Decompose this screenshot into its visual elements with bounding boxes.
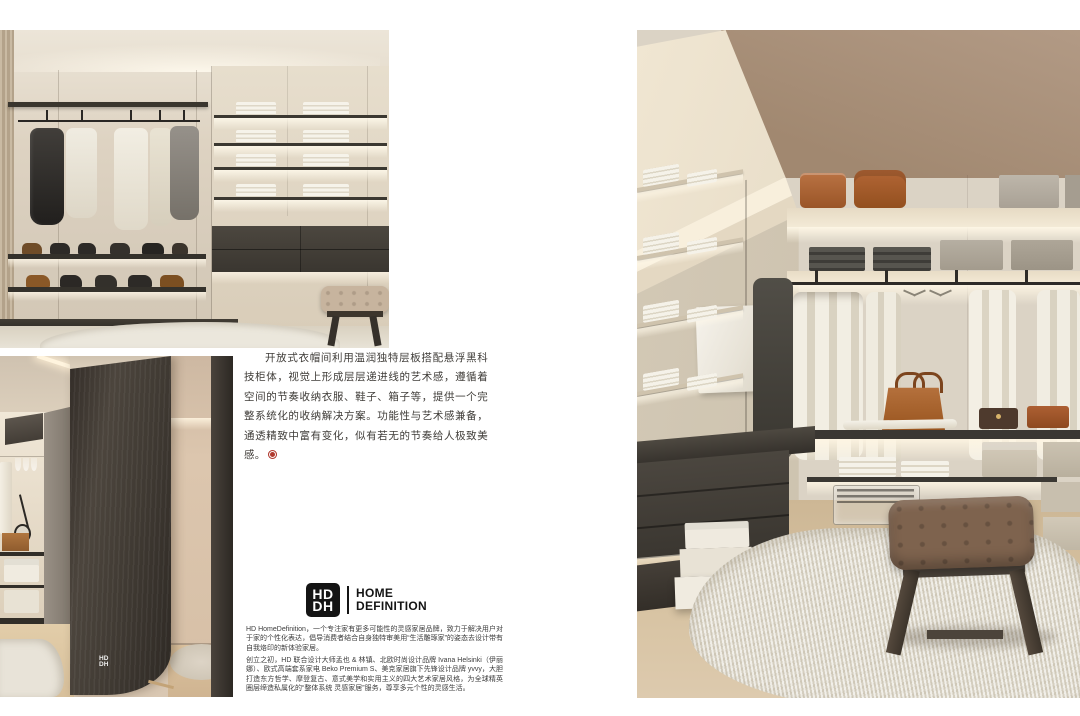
- grey-coat: [170, 126, 199, 220]
- brand-logo: HD DH HOME DEFINITION: [306, 583, 427, 617]
- drawer-seam: [300, 226, 301, 272]
- white-shirt: [66, 128, 97, 218]
- hd-watermark: HD DH: [99, 656, 108, 668]
- towel-stack: [303, 154, 349, 167]
- hanger-hook: [46, 110, 48, 122]
- monogram-row-bottom: DH: [312, 600, 333, 613]
- shoe-pair: [172, 243, 188, 254]
- counter-shelf: [787, 430, 1080, 439]
- rod-support: [885, 270, 888, 284]
- drawer-glow: [212, 272, 389, 284]
- shoe-pair: [26, 275, 50, 287]
- niche-shelf: [0, 552, 47, 556]
- rail-fascia: [787, 271, 1080, 282]
- hanger-hook: [81, 110, 83, 122]
- wordmark-line-2: DEFINITION: [356, 600, 427, 614]
- shoe-pair: [142, 243, 164, 254]
- beige-box: [982, 442, 1037, 477]
- shoe-pair: [110, 243, 130, 254]
- rod-support: [955, 270, 958, 284]
- towel-stack: [236, 102, 276, 115]
- towel-stack: [236, 154, 276, 167]
- shelf-glow: [8, 259, 206, 268]
- towel-stack: [839, 457, 896, 477]
- shag-rug: [0, 639, 64, 697]
- towel-shelf-glow: [214, 200, 387, 212]
- towel-stack: [303, 184, 349, 197]
- magazine-page: HD DH 开放式衣帽间利用温润独特层板搭配悬浮黑科技柜体，视觉上形成层层递进线…: [0, 0, 1080, 716]
- towel-stack: [236, 184, 276, 197]
- beige-box: [1043, 442, 1080, 477]
- white-box: [4, 559, 39, 582]
- hd-watermark-bottom: DH: [99, 662, 108, 668]
- hanging-towel: [0, 462, 12, 534]
- jeans-stack: [809, 247, 865, 271]
- bench-stretcher: [927, 630, 1003, 639]
- photo-partition-room: HD DH: [0, 356, 233, 697]
- rod-support: [1025, 270, 1028, 284]
- grey-box: [940, 240, 1003, 270]
- shoe-pair: [22, 243, 42, 254]
- wordmark-line-1: HOME: [356, 587, 427, 601]
- wood-partition: [70, 356, 171, 695]
- beige-box: [1041, 482, 1080, 512]
- glass-rod: [0, 456, 46, 457]
- intro-text: 开放式衣帽间利用温润独特层板搭配悬浮黑科技柜体，视觉上形成层层递进线的艺术感，遵…: [244, 353, 488, 461]
- grey-box: [1011, 240, 1073, 270]
- towel-stack: [303, 102, 349, 115]
- brand-wordmark: HOME DEFINITION: [356, 587, 427, 614]
- shoe-pair: [128, 275, 152, 287]
- shoe-pair: [160, 275, 184, 287]
- shoe-pair: [50, 243, 70, 254]
- brand-history-paragraph: 创立之初，HD 联合设计大师孟也 & 林镇、北欧时尚设计品牌 Ivana Hel…: [246, 656, 503, 694]
- black-jacket: [30, 128, 64, 225]
- shoe-pair: [95, 275, 117, 287]
- shoe-pair: [78, 243, 96, 254]
- grey-box: [999, 175, 1059, 208]
- intro-paragraph: 开放式衣帽间利用温润独特层板搭配悬浮黑科技柜体，视觉上形成层层递进线的艺术感，遵…: [244, 349, 488, 465]
- shoe-pair: [60, 275, 82, 287]
- logo-divider: [347, 586, 349, 614]
- hanger-hook: [159, 110, 161, 122]
- bench-cushion: [321, 286, 389, 313]
- rod-support: [815, 270, 818, 284]
- right-cove-glow: [168, 418, 213, 430]
- top-shelf: [8, 102, 208, 107]
- towel-shelf-glow: [214, 118, 387, 130]
- leather-hatbox: [854, 170, 906, 208]
- cognac-clutch: [1027, 406, 1069, 428]
- hanger-hook: [183, 110, 185, 122]
- towel-shelf-glow: [214, 170, 387, 182]
- shelf-glow: [8, 292, 206, 301]
- grey-box: [1065, 175, 1080, 208]
- cream-shirt: [150, 128, 172, 226]
- photo-closet-elevation: [0, 30, 389, 348]
- hanging-glass: [23, 458, 29, 471]
- upper-shelf-fascia: [787, 208, 1080, 227]
- hanging-glass: [15, 458, 21, 471]
- leather-suitcase: [800, 173, 846, 208]
- white-box: [685, 521, 750, 549]
- dark-pillar: [211, 356, 233, 697]
- hanging-glass: [31, 458, 37, 471]
- wooden-box: [2, 533, 29, 551]
- clutch-clasp: [996, 414, 1001, 419]
- towel-stack: [303, 130, 349, 143]
- photo-closet-perspective: [637, 30, 1080, 698]
- niche-shelf: [0, 585, 47, 588]
- hanger-hook: [130, 110, 132, 122]
- white-shirt: [114, 128, 148, 230]
- towel-stack: [236, 130, 276, 143]
- panel-seam: [287, 66, 288, 216]
- red-seal-icon: [268, 450, 277, 459]
- bench-cushion: [888, 495, 1035, 570]
- panel-seam: [211, 66, 212, 328]
- jeans-stack: [873, 247, 931, 271]
- hd-monogram-icon: HD DH: [306, 583, 340, 617]
- white-box: [4, 590, 39, 613]
- towel-stack: [901, 461, 949, 477]
- brand-about-paragraph: HD HomeDefinition，一个专注家有更多可能性的灵感家居品牌，致力于…: [246, 625, 503, 653]
